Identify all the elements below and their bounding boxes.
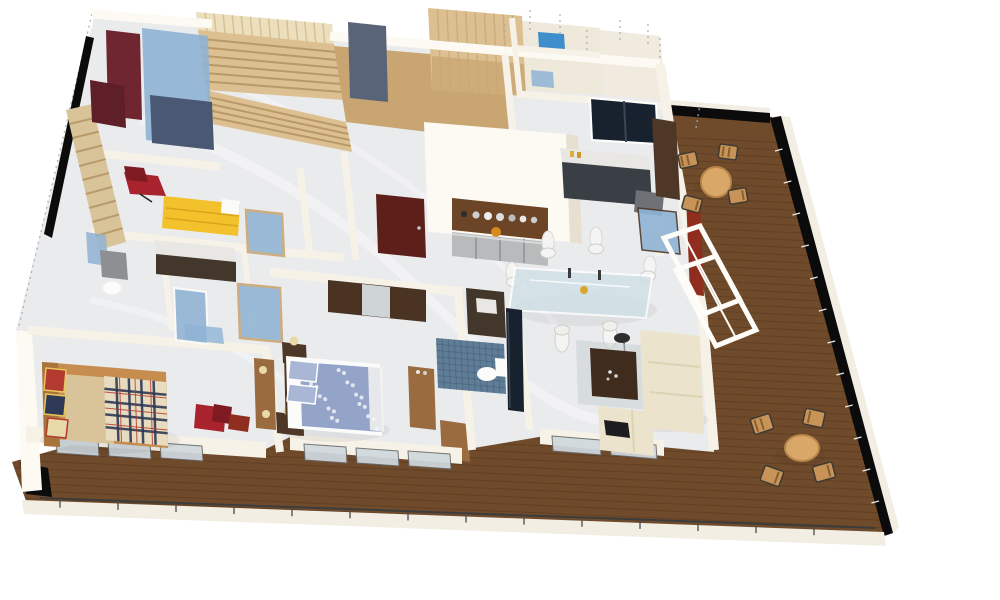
glass-dining-table — [509, 268, 652, 318]
floral-dot — [335, 419, 339, 423]
bar-plate — [472, 211, 479, 218]
dresser — [408, 366, 436, 430]
floral-dot — [357, 402, 361, 406]
chair-seat — [555, 325, 570, 335]
floor-plan-render — [0, 0, 1000, 600]
patio-chair — [718, 144, 738, 160]
dresser-lamp — [259, 366, 267, 374]
chair-seat — [803, 408, 826, 428]
floral-dot — [326, 407, 330, 411]
patio-chair — [803, 408, 826, 428]
bar-plate — [484, 212, 492, 220]
shower-seat — [100, 250, 128, 280]
floor-lamp-shade — [614, 333, 630, 343]
aquarium-glass — [638, 208, 680, 254]
bathtub-blue — [538, 32, 565, 49]
counter-jar — [577, 152, 581, 158]
bar-plate — [461, 211, 467, 217]
red-armchair-back — [212, 404, 232, 424]
chair-seat — [718, 144, 738, 160]
dresser-bottle — [416, 370, 420, 374]
chair-seat — [728, 188, 748, 205]
toilet-tank — [495, 358, 508, 377]
table-decor — [608, 370, 612, 374]
centerpiece — [580, 286, 588, 294]
floral-dot — [318, 394, 322, 398]
chair-seat — [603, 321, 618, 331]
table-decor — [607, 378, 610, 381]
blue-glass-door — [238, 284, 282, 342]
bar-plate — [531, 217, 537, 223]
vanity-sink — [476, 298, 497, 314]
door-knob — [417, 226, 421, 230]
wardrobe-mirror — [362, 284, 390, 318]
hallway-entry — [376, 194, 426, 258]
dining-chair — [555, 325, 570, 352]
bar-plate — [520, 216, 527, 223]
floral-dot — [345, 380, 349, 384]
slider-glass — [304, 444, 347, 463]
striped-pillow-red — [44, 368, 66, 392]
pillow — [287, 384, 317, 404]
patio-chair — [678, 151, 699, 168]
sheet-fold — [368, 366, 384, 432]
chair-seat — [589, 244, 604, 254]
chair-seat — [541, 248, 556, 258]
floral-dot — [342, 371, 346, 375]
bar-orange-bowl — [491, 227, 501, 237]
chair-slat — [728, 147, 729, 157]
maroon-wardrobe2 — [90, 80, 126, 128]
striped-pillow-gold — [46, 418, 68, 438]
bar-plate — [496, 213, 504, 221]
bath-vanity — [466, 288, 506, 338]
floral-dot — [359, 395, 363, 399]
patio-table — [785, 435, 819, 461]
blue-glass-door — [246, 210, 284, 256]
striped-pillow-navy — [44, 394, 66, 416]
floral-dot — [330, 416, 334, 420]
white-pillow — [221, 199, 240, 215]
patio-table — [701, 167, 731, 197]
toilet — [477, 367, 497, 381]
table-decor — [614, 374, 618, 378]
slider-glass — [356, 448, 399, 466]
slate-cabinet — [348, 22, 388, 102]
coffee-table — [590, 348, 638, 400]
pillow — [288, 360, 318, 382]
floral-dot — [332, 409, 336, 413]
floral-dot — [323, 397, 327, 401]
navy-closet-unit — [150, 95, 214, 150]
floral-dot — [354, 393, 358, 397]
entry-door — [376, 194, 426, 258]
patio-chair — [728, 188, 748, 205]
dresser-lamp — [262, 410, 270, 418]
bathtub-blue2 — [531, 70, 554, 88]
toilet — [103, 282, 121, 295]
candlestick — [598, 270, 601, 280]
counter-jar — [570, 151, 574, 157]
table-lamp — [290, 337, 299, 346]
candlestick — [568, 268, 571, 278]
floral-dot — [309, 382, 313, 386]
floral-dot — [363, 405, 367, 409]
floral-dot — [337, 368, 341, 372]
dresser-bottle — [423, 371, 427, 375]
red-ottoman — [228, 414, 250, 432]
floral-dot — [351, 383, 355, 387]
wood-cabinet — [652, 118, 680, 200]
bar-plate — [508, 214, 515, 221]
slider-glass — [408, 451, 451, 469]
chair-slat — [722, 146, 723, 156]
